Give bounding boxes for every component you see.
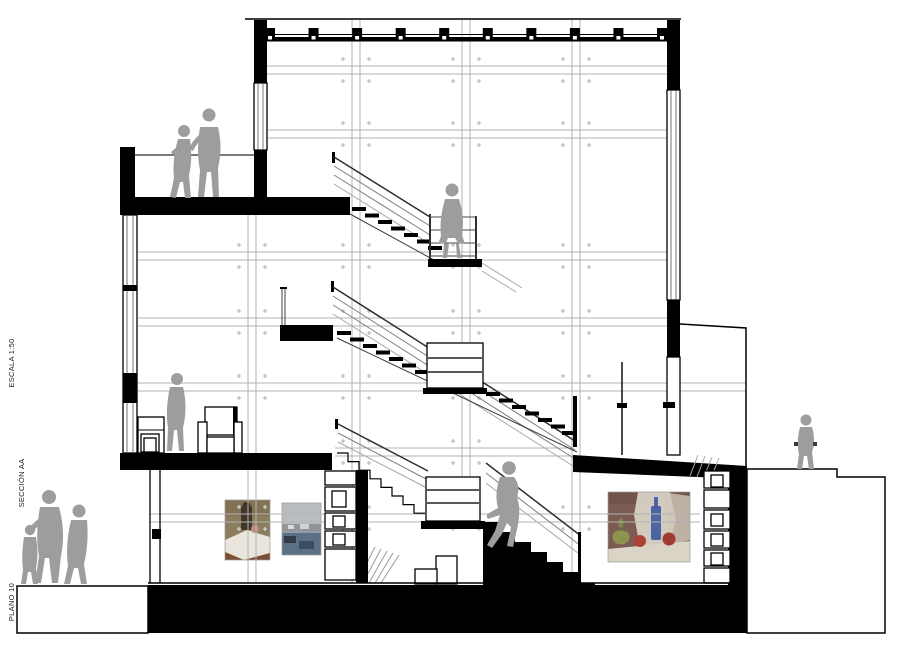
- roof-bracket-notch: [268, 36, 272, 40]
- niche-wall: [704, 470, 747, 586]
- terrain-block-left: [17, 586, 148, 633]
- sideboard: [138, 417, 164, 453]
- foundation: [148, 585, 747, 633]
- painting-still-life-with-bottle: [608, 492, 690, 562]
- ground-floor-slab: [120, 453, 332, 470]
- left-hall-column: [254, 20, 267, 215]
- armchair: [198, 407, 242, 453]
- terrain-block-right: [747, 469, 885, 633]
- roof-bracket-notch: [616, 36, 620, 40]
- roof-bracket-notch: [660, 36, 664, 40]
- roof-bracket-notch: [355, 36, 359, 40]
- escala-label: ESCALA 1:50: [7, 338, 16, 387]
- seccion-label: SECCIÓN AA: [17, 459, 26, 508]
- basement-shelving: [325, 470, 368, 583]
- roof-bracket-notch: [573, 36, 577, 40]
- left-facade-wall: [123, 215, 137, 453]
- plano-label: PLANO 10: [7, 583, 16, 621]
- architectural-section-sheet: ESCALA 1:50 SECCIÓN AA PLANO 10: [0, 0, 901, 658]
- painting-harbour-scene: [282, 503, 321, 555]
- roof-bracket-notch: [529, 36, 533, 40]
- roof-bracket-notch: [442, 36, 446, 40]
- roof-bracket-notch: [486, 36, 490, 40]
- roof-bracket-notch: [399, 36, 403, 40]
- roof-bracket-notch: [312, 36, 316, 40]
